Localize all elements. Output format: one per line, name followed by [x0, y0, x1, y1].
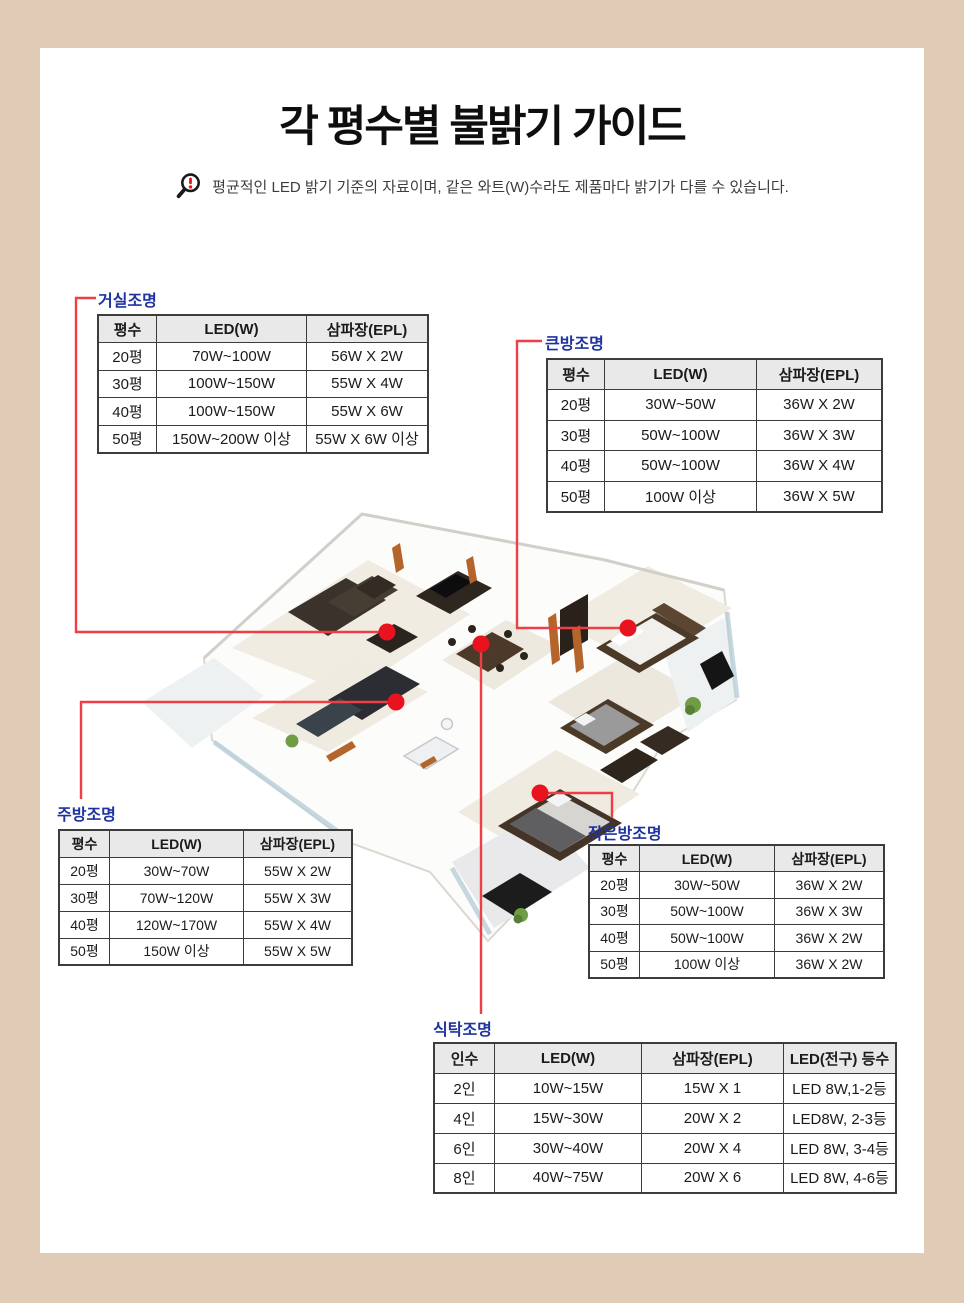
table-cell: 30W~40W — [495, 1133, 642, 1163]
table-cell: LED 8W,1-2등 — [784, 1073, 897, 1103]
table-row: 50평150W~200W 이상55W X 6W 이상 — [98, 425, 428, 453]
table-row: 50평150W 이상55W X 5W — [59, 938, 352, 965]
table-cell: 36W X 3W — [775, 898, 885, 925]
table-cell: 30W~50W — [605, 390, 757, 421]
table-cell: 30평 — [59, 884, 110, 911]
table-row: 30평70W~120W55W X 3W — [59, 884, 352, 911]
table-cell: 40평 — [589, 925, 640, 952]
header-row: 평수LED(W)삼파장(EPL) — [589, 845, 884, 872]
kitchen-lighting-table: 평수LED(W)삼파장(EPL)20평30W~70W55W X 2W30평70W… — [58, 829, 353, 966]
table-cell: 50평 — [98, 425, 157, 453]
table-cell: 50W~100W — [605, 451, 757, 482]
column-header: 인수 — [434, 1043, 495, 1073]
table-cell: 50W~100W — [640, 925, 775, 952]
table-row: 2인10W~15W15W X 1LED 8W,1-2등 — [434, 1073, 896, 1103]
table-cell: 8인 — [434, 1163, 495, 1193]
table-cell: 100W 이상 — [605, 481, 757, 512]
table-cell: 120W~170W — [110, 911, 244, 938]
kitchen-table-label: 주방조명 — [57, 801, 116, 825]
table-cell: 55W X 4W — [244, 911, 353, 938]
table-cell: 30W~50W — [640, 872, 775, 899]
table-cell: 55W X 6W 이상 — [307, 425, 429, 453]
table-row: 40평120W~170W55W X 4W — [59, 911, 352, 938]
column-header: 삼파장(EPL) — [757, 359, 883, 390]
living-lighting-table: 평수LED(W)삼파장(EPL)20평70W~100W56W X 2W30평10… — [97, 314, 429, 454]
header-row: 인수LED(W)삼파장(EPL)LED(전구) 등수 — [434, 1043, 896, 1073]
table-cell: 36W X 2W — [775, 951, 885, 978]
header-row: 평수LED(W)삼파장(EPL) — [547, 359, 882, 390]
table-cell: 50W~100W — [605, 420, 757, 451]
notice-text: 평균적인 LED 밝기 기준의 자료이며, 같은 와트(W)수라도 제품마다 밝… — [212, 176, 789, 197]
table-row: 20평30W~50W36W X 2W — [589, 872, 884, 899]
column-header: LED(W) — [495, 1043, 642, 1073]
column-header: LED(전구) 등수 — [784, 1043, 897, 1073]
table-cell: 40W~75W — [495, 1163, 642, 1193]
column-header: 평수 — [589, 845, 640, 872]
table-cell: 55W X 6W — [307, 398, 429, 426]
table-cell: LED8W, 2-3등 — [784, 1103, 897, 1133]
bigroom-table-label: 큰방조명 — [545, 330, 604, 354]
page-title: 각 평수별 불밝기 가이드 — [0, 92, 964, 154]
table-cell: 15W~30W — [495, 1103, 642, 1133]
table-cell: 4인 — [434, 1103, 495, 1133]
table-cell: 50평 — [547, 481, 605, 512]
table-cell: 36W X 2W — [775, 872, 885, 899]
table-cell: LED 8W, 4-6등 — [784, 1163, 897, 1193]
table-cell: 40평 — [547, 451, 605, 482]
table-row: 6인30W~40W20W X 4LED 8W, 3-4등 — [434, 1133, 896, 1163]
table-cell: 50W~100W — [640, 898, 775, 925]
dining-table-label: 식탁조명 — [433, 1016, 492, 1040]
table-cell: 6인 — [434, 1133, 495, 1163]
column-header: 평수 — [98, 315, 157, 343]
table-cell: 10W~15W — [495, 1073, 642, 1103]
header-row: 평수LED(W)삼파장(EPL) — [59, 830, 352, 857]
dining-lighting-table: 인수LED(W)삼파장(EPL)LED(전구) 등수2인10W~15W15W X… — [433, 1042, 897, 1194]
column-header: LED(W) — [157, 315, 307, 343]
table-row: 20평30W~50W36W X 2W — [547, 390, 882, 421]
table-cell: 30평 — [547, 420, 605, 451]
table-cell: 30평 — [589, 898, 640, 925]
table-cell: 36W X 4W — [757, 451, 883, 482]
table-row: 50평100W 이상36W X 2W — [589, 951, 884, 978]
table-row: 20평30W~70W55W X 2W — [59, 857, 352, 884]
table-row: 30평50W~100W36W X 3W — [589, 898, 884, 925]
column-header: 평수 — [547, 359, 605, 390]
table-cell: 70W~100W — [157, 343, 307, 371]
table-cell: 55W X 5W — [244, 938, 353, 965]
table-cell: 15W X 1 — [642, 1073, 784, 1103]
table-cell: 50평 — [59, 938, 110, 965]
table-row: 30평100W~150W55W X 4W — [98, 370, 428, 398]
table-cell: 150W 이상 — [110, 938, 244, 965]
table-cell: 36W X 2W — [757, 390, 883, 421]
table-row: 4인15W~30W20W X 2LED8W, 2-3등 — [434, 1103, 896, 1133]
bigroom-lighting-table: 평수LED(W)삼파장(EPL)20평30W~50W36W X 2W30평50W… — [546, 358, 883, 513]
table-cell: 20평 — [59, 857, 110, 884]
table-cell: 40평 — [98, 398, 157, 426]
table-row: 50평100W 이상36W X 5W — [547, 481, 882, 512]
table-cell: 20W X 6 — [642, 1163, 784, 1193]
table-cell: 55W X 3W — [244, 884, 353, 911]
infographic-page: 각 평수별 불밝기 가이드 평균적인 LED 밝기 기준의 자료이며, 같은 와… — [0, 0, 964, 1303]
table-row: 20평70W~100W56W X 2W — [98, 343, 428, 371]
table-row: 30평50W~100W36W X 3W — [547, 420, 882, 451]
table-cell: 36W X 5W — [757, 481, 883, 512]
table-cell: 30W~70W — [110, 857, 244, 884]
column-header: 삼파장(EPL) — [244, 830, 353, 857]
table-row: 40평50W~100W36W X 4W — [547, 451, 882, 482]
living-table-label: 거실조명 — [98, 287, 157, 311]
column-header: LED(W) — [110, 830, 244, 857]
table-cell: 20평 — [547, 390, 605, 421]
table-cell: 36W X 2W — [775, 925, 885, 952]
smallroom-lighting-table: 평수LED(W)삼파장(EPL)20평30W~50W36W X 2W30평50W… — [588, 844, 885, 979]
column-header: 삼파장(EPL) — [642, 1043, 784, 1073]
table-row: 8인40W~75W20W X 6LED 8W, 4-6등 — [434, 1163, 896, 1193]
table-cell: 20W X 4 — [642, 1133, 784, 1163]
column-header: 삼파장(EPL) — [775, 845, 885, 872]
smallroom-table-label: 작은방조명 — [588, 820, 662, 844]
table-cell: 100W~150W — [157, 398, 307, 426]
table-cell: 100W 이상 — [640, 951, 775, 978]
table-cell: 30평 — [98, 370, 157, 398]
header-row: 평수LED(W)삼파장(EPL) — [98, 315, 428, 343]
table-row: 40평100W~150W55W X 6W — [98, 398, 428, 426]
column-header: 삼파장(EPL) — [307, 315, 429, 343]
table-cell: 70W~120W — [110, 884, 244, 911]
table-cell: 36W X 3W — [757, 420, 883, 451]
table-cell: 20W X 2 — [642, 1103, 784, 1133]
table-cell: 55W X 4W — [307, 370, 429, 398]
table-cell: 2인 — [434, 1073, 495, 1103]
table-cell: 56W X 2W — [307, 343, 429, 371]
table-cell: LED 8W, 3-4등 — [784, 1133, 897, 1163]
table-cell: 50평 — [589, 951, 640, 978]
table-cell: 40평 — [59, 911, 110, 938]
table-cell: 100W~150W — [157, 370, 307, 398]
column-header: LED(W) — [640, 845, 775, 872]
column-header: LED(W) — [605, 359, 757, 390]
table-cell: 55W X 2W — [244, 857, 353, 884]
table-cell: 20평 — [589, 872, 640, 899]
notice-bar: 평균적인 LED 밝기 기준의 자료이며, 같은 와트(W)수라도 제품마다 밝… — [0, 172, 964, 200]
table-cell: 20평 — [98, 343, 157, 371]
table-cell: 150W~200W 이상 — [157, 425, 307, 453]
table-row: 40평50W~100W36W X 2W — [589, 925, 884, 952]
magnifier-exclamation-icon — [175, 172, 203, 200]
column-header: 평수 — [59, 830, 110, 857]
